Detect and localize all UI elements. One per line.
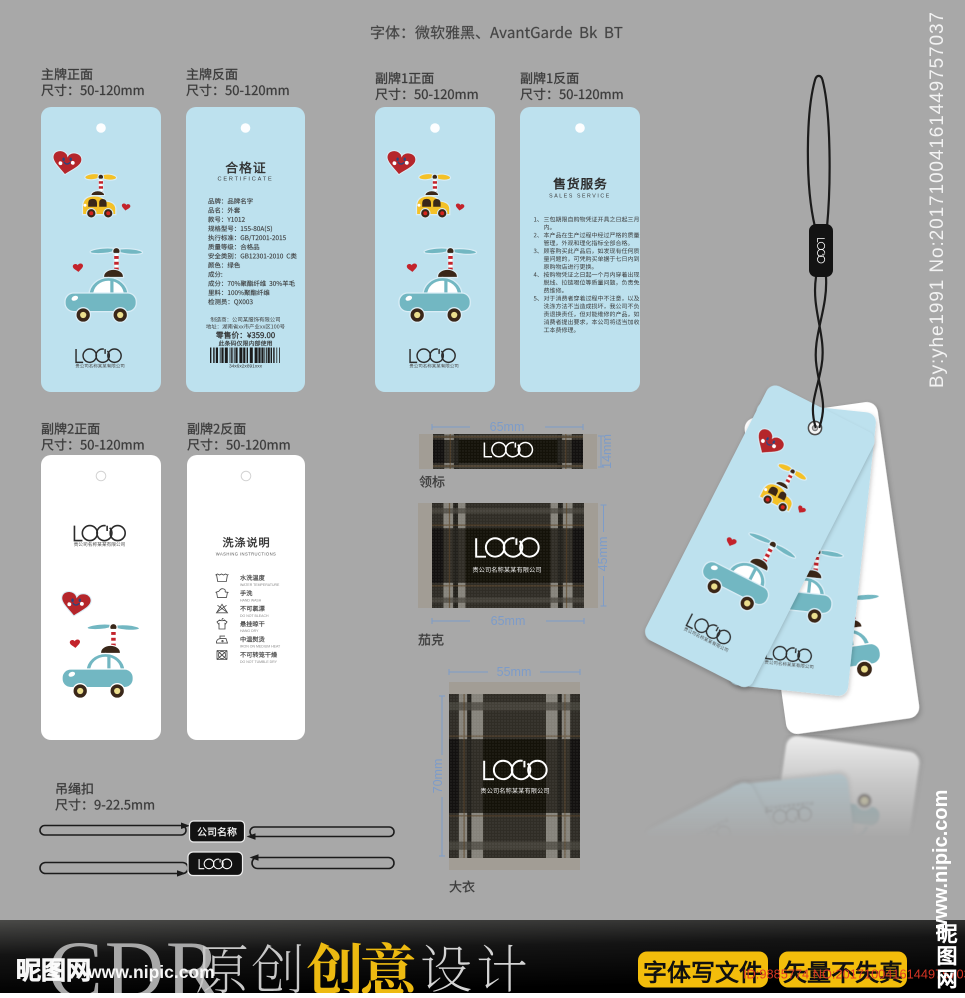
svg-text:www.nipic.com: www.nipic.com [87, 962, 215, 982]
svg-text:65mm: 65mm [491, 614, 526, 628]
svg-text:DO NOT BLEACH: DO NOT BLEACH [240, 614, 269, 618]
svg-text:DO NOT TUMBLE DRY: DO NOT TUMBLE DRY [240, 660, 278, 664]
svg-text:45mm: 45mm [596, 537, 610, 572]
svg-text:70mm: 70mm [431, 759, 445, 794]
svg-text:HANG DRY: HANG DRY [240, 629, 259, 633]
svg-text:IRON ON MEDIUM HEAT: IRON ON MEDIUM HEAT [240, 645, 281, 649]
svg-text:34x6x2x891xxx: 34x6x2x891xxx [229, 364, 263, 370]
svg-text:55mm: 55mm [497, 665, 532, 679]
svg-text:CERTIFICATE: CERTIFICATE [218, 177, 274, 183]
svg-text:ID:9885774 NO:2017100416144975: ID:9885774 NO:20171004161449757037 [743, 967, 965, 982]
svg-text:WASHING INSTRUCTIONS: WASHING INSTRUCTIONS [216, 552, 276, 557]
svg-text:SALES SERVICE: SALES SERVICE [549, 194, 611, 200]
svg-text:www.nipic.com: www.nipic.com [930, 790, 952, 936]
svg-text:65mm: 65mm [490, 420, 525, 434]
svg-text:CDR: CDR [48, 924, 223, 993]
svg-text:14mm: 14mm [600, 434, 614, 469]
svg-text:WATER TEMPERATURE: WATER TEMPERATURE [240, 583, 280, 587]
svg-text:HAND WASH: HAND WASH [240, 598, 262, 602]
svg-text:By:yhe1991 No:2017100416144975: By:yhe1991 No:20171004161449757037 [927, 12, 948, 388]
